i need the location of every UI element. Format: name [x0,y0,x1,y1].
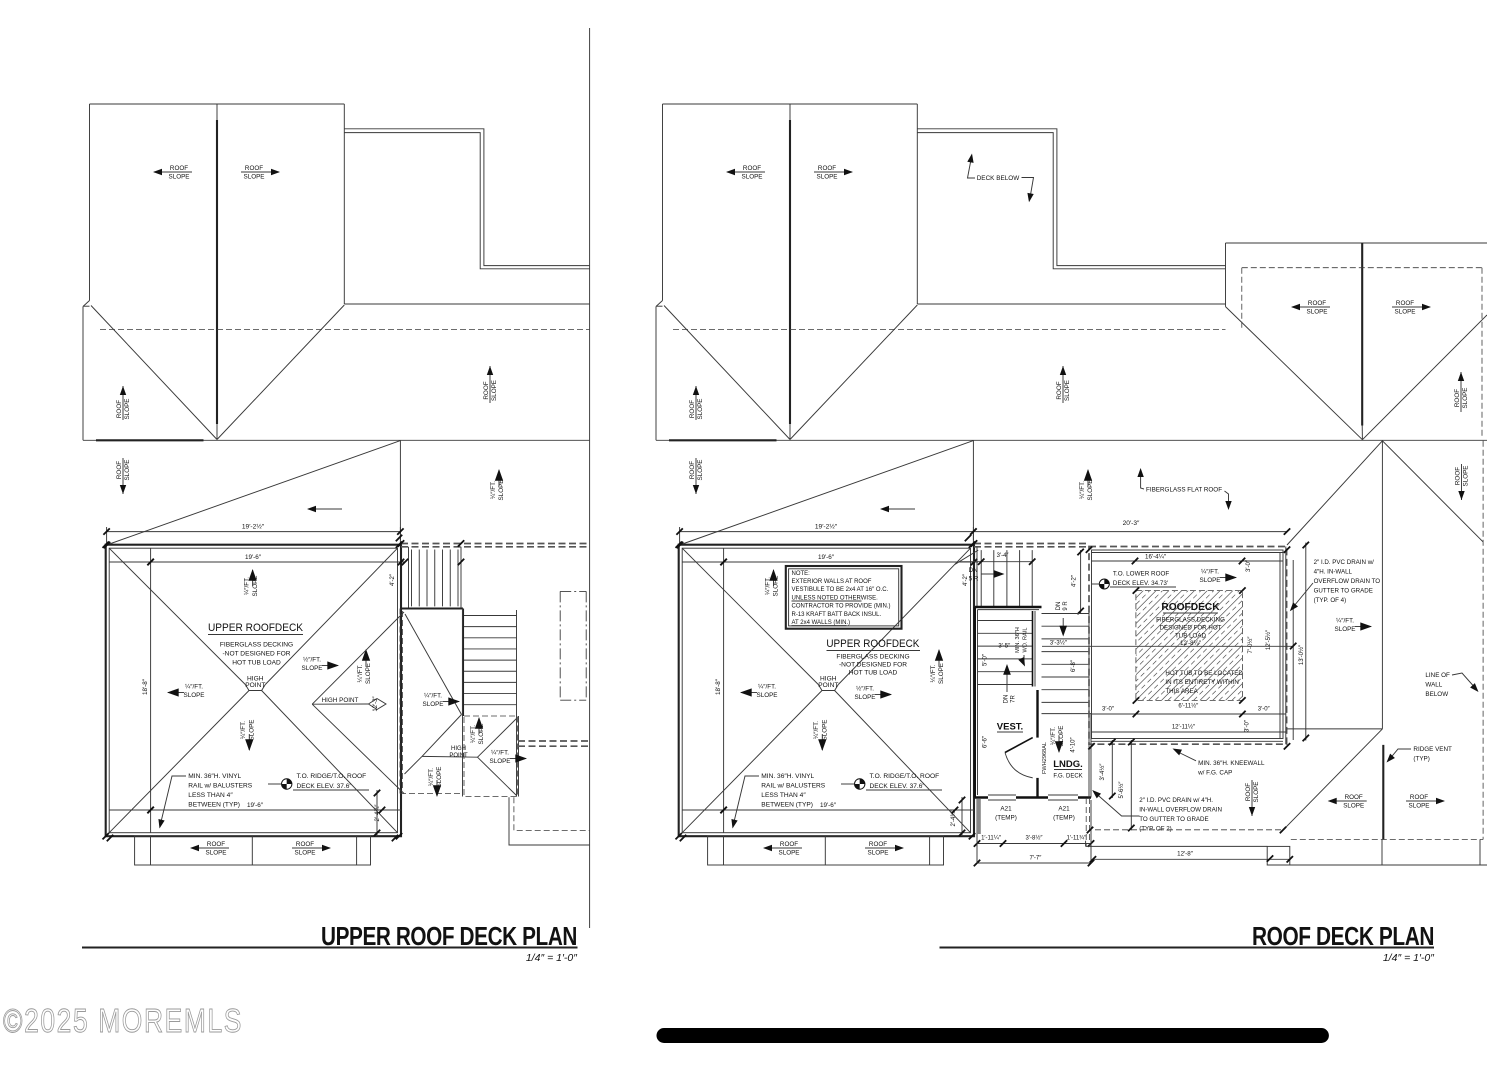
svg-text:THIS AREA: THIS AREA [1165,688,1198,695]
svg-text:HIGH POINT: HIGH POINT [322,697,359,704]
svg-text:SLOPE: SLOPE [491,380,498,401]
svg-text:¼″/FT.: ¼″/FT. [1079,481,1086,499]
svg-text:©2025 MOREMLS: ©2025 MOREMLS [3,1002,243,1039]
svg-text:½″/FT.: ½″/FT. [303,656,321,664]
svg-text:SLOPE: SLOPE [423,701,444,708]
svg-text:ROOF: ROOF [818,165,836,172]
svg-text:RIDGE VENT: RIDGE VENT [1413,746,1452,753]
svg-text:TO GUTTER TO GRADE: TO GUTTER TO GRADE [1139,816,1208,823]
svg-text:(TEMP): (TEMP) [1053,815,1075,822]
svg-text:DECK ELEV. 34.73′: DECK ELEV. 34.73′ [1113,580,1169,587]
svg-text:2″ I.D. PVC DRAIN w/ 4″H.: 2″ I.D. PVC DRAIN w/ 4″H. [1139,797,1213,804]
svg-text:13′-0½″: 13′-0½″ [1298,644,1305,665]
svg-text:¼″/FT.: ¼″/FT. [813,721,820,739]
svg-text:ROOF: ROOF [1056,381,1063,399]
svg-text:ROOF: ROOF [689,400,696,418]
svg-text:18′-8″: 18′-8″ [142,678,149,695]
svg-text:1′-11¼″: 1′-11¼″ [981,836,1002,842]
svg-text:3′-0″: 3′-0″ [1246,559,1252,572]
svg-text:SLOPE: SLOPE [169,174,190,181]
svg-text:F.G. DECK: F.G. DECK [1053,774,1082,780]
svg-text:1′-11¾″: 1′-11¾″ [1066,836,1087,842]
svg-text:-NOT DESIGNED FOR: -NOT DESIGNED FOR [839,662,907,669]
svg-text:VEST.: VEST. [997,722,1023,733]
svg-text:¼″/FT.: ¼″/FT. [758,684,776,691]
svg-text:3′-0″: 3′-0″ [1245,719,1251,732]
svg-text:ROOF: ROOF [296,841,314,848]
svg-text:3′-8½″: 3′-8½″ [1026,835,1044,842]
svg-text:HOT TUB LOAD: HOT TUB LOAD [232,660,281,667]
svg-text:-NOT DESIGNED FOR: -NOT DESIGNED FOR [222,651,290,658]
svg-text:7R: 7R [1011,694,1017,702]
svg-text:LNDG.: LNDG. [1053,759,1083,770]
svg-text:SLOPE: SLOPE [244,174,265,181]
svg-text:5 R: 5 R [969,576,979,583]
svg-text:ROOF: ROOF [743,165,761,172]
svg-text:MIN. 36″H: MIN. 36″H [1015,627,1021,653]
svg-text:DECK ELEV. 37.6′: DECK ELEV. 37.6′ [297,783,352,790]
svg-text:SLOPE: SLOPE [697,460,704,481]
svg-text:ROOF: ROOF [207,841,225,848]
svg-text:FWH2968AL: FWH2968AL [1042,742,1048,774]
svg-text:FIBERGLASS FLAT ROOF: FIBERGLASS FLAT ROOF [1146,487,1222,494]
svg-text:MIN. 36″H. VINYL: MIN. 36″H. VINYL [761,773,814,780]
svg-text:ROOF: ROOF [245,165,263,172]
svg-text:20′-3″: 20′-3″ [1123,520,1140,527]
svg-text:7′-0½″: 7′-0½″ [1247,636,1254,654]
svg-text:SLOPE: SLOPE [1253,782,1260,803]
svg-text:¼″/FT.: ¼″/FT. [424,693,442,700]
svg-text:2′-4¾″: 2′-4¾″ [375,804,381,822]
svg-text:A21: A21 [1058,806,1070,813]
svg-text:12′-5½″: 12′-5½″ [1265,629,1272,650]
svg-text:6′-8″: 6′-8″ [1071,659,1077,672]
svg-text:3′-5″: 3′-5″ [998,644,1011,650]
svg-text:SLOPE: SLOPE [490,758,511,765]
svg-text:¼″/FT.: ¼″/FT. [930,664,937,682]
svg-text:4′-10″: 4′-10″ [1071,736,1077,752]
svg-text:3′-0″: 3′-0″ [1258,707,1271,713]
svg-text:ROOF: ROOF [116,400,123,418]
svg-text:12′-8¼″: 12′-8¼″ [1180,640,1202,647]
svg-text:ROOF: ROOF [1345,794,1363,801]
svg-text:6′-11½″: 6′-11½″ [1178,703,1199,710]
svg-text:(TEMP): (TEMP) [995,815,1017,822]
svg-text:½″/FT.: ½″/FT. [856,685,874,693]
svg-text:UPPER ROOFDECK: UPPER ROOFDECK [826,638,920,650]
svg-text:DN: DN [1056,602,1062,611]
svg-text:SLOPE: SLOPE [938,663,945,684]
svg-text:MIN. 36″H. KNEEWALL: MIN. 36″H. KNEEWALL [1198,760,1265,767]
svg-text:¼″/FT.: ¼″/FT. [490,481,497,499]
svg-text:¼″/FT.: ¼″/FT. [185,684,203,691]
svg-text:POINT: POINT [818,682,838,689]
svg-text:SLOPE: SLOPE [1343,803,1364,810]
svg-text:DN: DN [1004,695,1010,704]
svg-text:POINT: POINT [449,753,468,759]
svg-text:SLOPE: SLOPE [1463,466,1470,487]
svg-text:UPPER ROOFDECK: UPPER ROOFDECK [208,622,304,634]
svg-text:3′-4½″: 3′-4½″ [1099,763,1106,781]
svg-text:IN ITS ENTIRETY WITHIN: IN ITS ENTIRETY WITHIN [1165,679,1238,686]
svg-text:A21: A21 [1000,806,1012,813]
svg-text:ROOF: ROOF [1308,300,1326,307]
svg-text:19′-6″: 19′-6″ [820,802,837,809]
svg-text:LESS THAN 4″: LESS THAN 4″ [761,792,806,799]
svg-text:19′-6″: 19′-6″ [247,802,264,809]
svg-text:19′-6″: 19′-6″ [818,554,835,561]
svg-text:T.O. RIDGE/T.O. ROOF: T.O. RIDGE/T.O. ROOF [870,773,940,780]
svg-text:6′-6″: 6′-6″ [983,735,989,748]
svg-text:SLOPE: SLOPE [868,850,889,857]
svg-text:WALL: WALL [1425,682,1442,689]
svg-text:SLOPE: SLOPE [1409,803,1430,810]
svg-text:¼″/FT.: ¼″/FT. [428,768,435,786]
svg-text:5′-6½″: 5′-6½″ [1118,781,1125,799]
svg-text:SLOPE: SLOPE [757,692,778,699]
svg-text:SLOPE: SLOPE [124,460,131,481]
svg-text:19′-2½″: 19′-2½″ [815,523,838,531]
svg-text:MIN. 36″H. VINYL: MIN. 36″H. VINYL [188,773,241,780]
svg-text:IN-WALL OVERFLOW DRAIN: IN-WALL OVERFLOW DRAIN [1139,807,1222,814]
svg-text:ROOF: ROOF [1454,389,1461,407]
svg-text:BETWEEN (TYP): BETWEEN (TYP) [761,802,813,809]
svg-text:AT 2x4 WALLS (MIN.): AT 2x4 WALLS (MIN.) [792,620,851,626]
svg-text:SLOPE: SLOPE [1307,309,1328,316]
svg-text:SLOPE: SLOPE [1395,309,1416,316]
svg-text:12′-8″: 12′-8″ [1177,851,1194,858]
svg-text:ROOF: ROOF [116,461,123,479]
svg-text:4′-2″: 4′-2″ [390,573,396,586]
svg-text:(TYP. OF 4): (TYP. OF 4) [1314,597,1347,604]
svg-text:TUB LOAD: TUB LOAD [1175,633,1206,640]
svg-text:(TYP): (TYP) [1413,756,1429,763]
svg-text:4″H. IN-WALL: 4″H. IN-WALL [1314,569,1353,576]
svg-text:9 R: 9 R [1063,601,1069,611]
svg-text:BELOW: BELOW [1425,691,1448,698]
svg-text:ROOF: ROOF [689,461,696,479]
svg-text:(TYP. OF 2): (TYP. OF 2) [1139,826,1172,833]
svg-text:ROOF: ROOF [483,381,490,399]
svg-text:SLOPE: SLOPE [206,850,227,857]
svg-text:GUTTER TO GRADE: GUTTER TO GRADE [1314,588,1373,595]
svg-text:ROOF: ROOF [780,841,798,848]
svg-text:VESTIBULE TO BE 2x4 AT 16″ O.C: VESTIBULE TO BE 2x4 AT 16″ O.C. [792,587,889,593]
svg-text:FIBERGLASS DECKING: FIBERGLASS DECKING [1156,617,1225,624]
svg-text:2″ I.D. PVC DRAIN w/: 2″ I.D. PVC DRAIN w/ [1314,559,1375,566]
svg-text:SLOPE: SLOPE [124,399,131,420]
svg-text:¼″/FT.: ¼″/FT. [240,721,247,739]
svg-text:DECK ELEV. 37.6′: DECK ELEV. 37.6′ [870,783,925,790]
svg-text:1/4″ = 1′-0″: 1/4″ = 1′-0″ [1383,952,1435,964]
svg-text:SLOPE: SLOPE [1064,380,1071,401]
svg-text:POINT: POINT [245,682,265,689]
svg-text:T.O. LOWER ROOF: T.O. LOWER ROOF [1113,571,1169,578]
svg-text:ROOFDECK: ROOFDECK [1161,602,1220,613]
svg-text:12′-11½″: 12′-11½″ [1172,724,1196,731]
svg-text:19′-2½″: 19′-2½″ [242,523,265,531]
svg-text:LINE OF: LINE OF [1425,672,1450,679]
svg-text:NOTE:: NOTE: [792,571,811,577]
svg-text:w/ F.G. CAP: w/ F.G. CAP [1197,770,1232,777]
svg-text:SLOPE: SLOPE [1200,577,1221,584]
svg-text:OVERFLOW DRAIN TO: OVERFLOW DRAIN TO [1314,578,1381,585]
svg-text:4′-2″: 4′-2″ [1072,574,1078,587]
svg-text:18′-8″: 18′-8″ [715,678,722,695]
svg-text:HOT TUB LOAD: HOT TUB LOAD [849,670,898,677]
svg-text:RAIL w/ BALUSTERS: RAIL w/ BALUSTERS [761,783,825,790]
svg-text:R-13 KRAFT BATT BACK INSUL.: R-13 KRAFT BATT BACK INSUL. [792,612,882,618]
svg-text:DESIGNED FOR HOT: DESIGNED FOR HOT [1160,625,1222,632]
svg-text:3′-4″: 3′-4″ [997,553,1010,559]
svg-text:SLOPE: SLOPE [295,850,316,857]
svg-text:CONTRACTOR TO PROVIDE (MIN.): CONTRACTOR TO PROVIDE (MIN.) [792,604,891,610]
svg-text:2′-4¾″: 2′-4¾″ [951,809,957,827]
svg-text:SLOPE: SLOPE [184,692,205,699]
svg-text:SLOPE: SLOPE [855,694,876,701]
svg-text:SLOPE: SLOPE [817,174,838,181]
svg-text:UNLESS NOTED OTHERWISE.: UNLESS NOTED OTHERWISE. [792,595,879,601]
svg-text:HOT TUB TO BE LOCATED: HOT TUB TO BE LOCATED [1165,670,1243,677]
svg-text:LESS THAN 4″: LESS THAN 4″ [188,792,233,799]
svg-text:T.O. RIDGE/T.O. ROOF: T.O. RIDGE/T.O. ROOF [297,773,367,780]
svg-text:SLOPE: SLOPE [365,663,372,684]
svg-text:¼″/FT.: ¼″/FT. [357,664,364,682]
svg-text:SLOPE: SLOPE [302,665,323,672]
svg-text:19′-6″: 19′-6″ [245,554,262,561]
svg-text:1/4″ = 1′-0″: 1/4″ = 1′-0″ [526,952,578,964]
svg-text:16′-4¼″: 16′-4¼″ [1145,553,1167,560]
svg-text:SLOPE: SLOPE [1335,626,1356,633]
svg-text:¼″/FT.: ¼″/FT. [1201,569,1219,576]
svg-text:ROOF: ROOF [1396,300,1414,307]
svg-text:¼″/FT.: ¼″/FT. [1336,618,1354,625]
svg-text:ROOF: ROOF [1454,467,1461,485]
svg-text:12′-3″: 12′-3″ [373,695,379,711]
svg-text:ROOF: ROOF [1245,783,1252,801]
svg-text:SLOPE: SLOPE [697,399,704,420]
svg-text:SLOPE: SLOPE [779,850,800,857]
svg-text:5′-0″: 5′-0″ [983,653,989,666]
svg-text:7′-7″: 7′-7″ [1029,856,1042,862]
svg-text:DECK BELOW: DECK BELOW [977,175,1021,182]
svg-text:ROOF: ROOF [1410,794,1428,801]
svg-text:DN: DN [969,567,979,574]
svg-text:FIBERGLASS DECKING: FIBERGLASS DECKING [836,654,909,661]
svg-text:EXTERIOR WALLS AT ROOF: EXTERIOR WALLS AT ROOF [792,579,872,585]
svg-text:SLOPE: SLOPE [1462,388,1469,409]
svg-text:RAIL w/ BALUSTERS: RAIL w/ BALUSTERS [188,783,252,790]
svg-text:WD. RAIL: WD. RAIL [1023,628,1029,653]
svg-text:SLOPE: SLOPE [742,174,763,181]
svg-text:ROOF: ROOF [170,165,188,172]
svg-text:¼″/FT.: ¼″/FT. [491,750,509,757]
svg-text:3′-3½″: 3′-3½″ [1050,640,1068,647]
svg-text:FIBERGLASS DECKING: FIBERGLASS DECKING [220,642,293,649]
svg-text:3′-0″: 3′-0″ [1102,707,1115,713]
svg-text:ROOF: ROOF [869,841,887,848]
svg-text:BETWEEN (TYP): BETWEEN (TYP) [188,802,240,809]
